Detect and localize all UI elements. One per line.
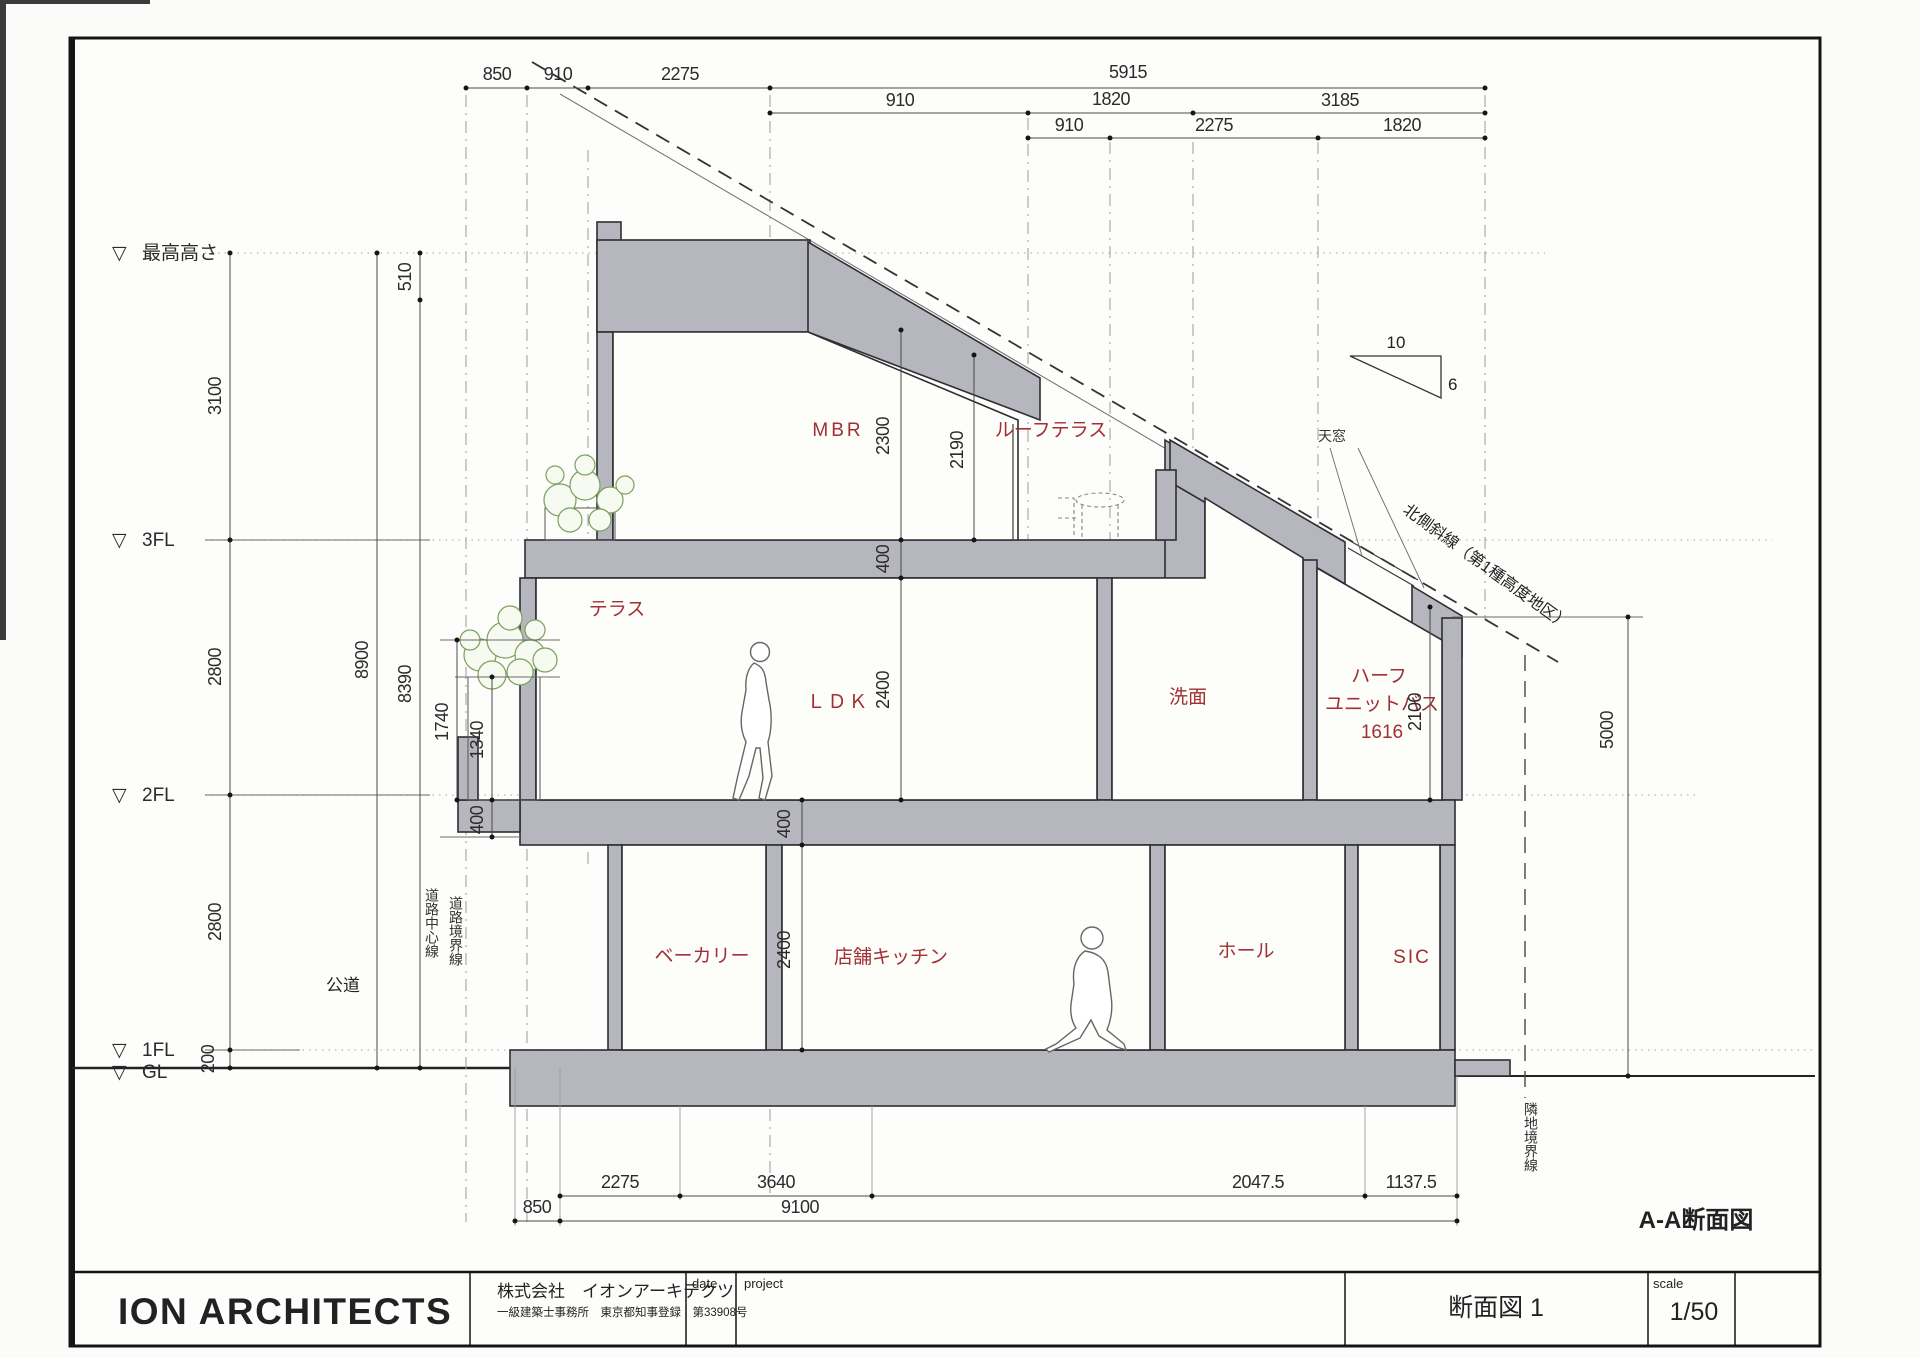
level-label-3fl: 3FL [142,530,175,551]
first-floor-right-wall [1440,845,1455,1050]
sheet-name: 断面図 1 [1448,1294,1544,1322]
dim-left-200: 200 [198,1044,218,1073]
roof-terrace-pier [1156,470,1176,540]
dim-left-510: 510 [395,262,415,291]
road-boundary-label: 道路境界線 [448,896,464,966]
dim-top1-2275: 2275 [661,64,700,84]
room-label-bath-size: 1616 [1361,722,1403,743]
room-label-bakery: ベーカリー [654,946,749,967]
person-2f-head [751,643,770,662]
neighbor-boundary-label: 隣地境界線 [1523,1102,1539,1172]
date-cell-label: date [692,1276,717,1291]
dim-bath-2100: 2100 [1405,692,1425,731]
drawing-title: A-A断面図 [1639,1206,1754,1234]
hall-sic-wall [1345,845,1358,1050]
room-label-hall: ホール [1217,941,1274,962]
dim-left-8390: 8390 [395,664,415,703]
dim-slab3f-400: 400 [873,544,893,573]
dim-bot2-9100: 9100 [781,1197,820,1217]
dim-top1-5915: 5915 [1109,62,1148,82]
gl-marker-icon: ▽ [112,1062,127,1083]
room-label-terrace: テラス [589,599,646,620]
dim-top2-910: 910 [886,90,915,110]
dim-terrace-1740: 1740 [432,702,452,741]
second-floor-left-wall [520,578,536,800]
dim-top3-2275: 2275 [1195,115,1234,135]
road-center-label: 道路中心線 [424,888,440,958]
first-floor-left-wall [608,845,622,1050]
level-label-2fl: 2FL [142,785,175,806]
f2-marker-icon: ▽ [112,785,127,806]
dim-bot1-2275: 2275 [601,1172,640,1192]
roof-slab-flat [597,240,810,332]
room-label-sic: SIC [1393,947,1431,968]
dim-mbr-2300: 2300 [873,416,893,455]
dim-top3-910: 910 [1055,115,1084,135]
second-floor-slab [520,800,1455,845]
dim-ldk-2400: 2400 [873,670,893,709]
slope-rise-label: 6 [1448,375,1457,394]
scan-edge-top [0,0,150,4]
skylight-label: 天窓 [1318,428,1346,444]
scan-edge-left [0,0,6,640]
kitchen-hall-wall [1150,845,1165,1050]
person-1f-head [1081,927,1103,949]
dim-top1-850: 850 [483,64,512,84]
dim-bot2-850: 850 [523,1197,552,1217]
slope-run-label: 10 [1387,333,1406,352]
dim-bot1-2047: 2047.5 [1232,1172,1285,1192]
firm-logo: ION ARCHITECTS [118,1291,452,1332]
dim-top3-1820: 1820 [1383,115,1422,135]
section-drawing-svg: ▽ 最高高さ ▽ 3FL ▽ 2FL ▽ 1FL ▽ GL [0,0,1920,1358]
dim-top2-1820: 1820 [1092,89,1131,109]
room-label-roof-terrace: ルーフテラス [995,420,1107,441]
dim-1f-2400: 2400 [774,930,794,969]
dim-left-2800b: 2800 [205,902,225,941]
dim-bot1-3640: 3640 [757,1172,796,1192]
room-label-ldk: ＬＤＫ [806,692,869,713]
level-label-max: 最高高さ [142,242,218,264]
room-label-shop-kitchen: 店舗キッチン [834,946,948,968]
f3-marker-icon: ▽ [112,530,127,551]
dim-top1-910: 910 [544,64,573,84]
dim-slab2f-400: 400 [774,809,794,838]
dim-bot1-1137: 1137.5 [1386,1172,1437,1192]
third-floor-slab [525,540,1200,578]
dim-terrace-400: 400 [467,805,487,834]
dim-top2-3185: 3185 [1321,90,1360,110]
max-height-marker-icon: ▽ [112,243,127,264]
f1-marker-icon: ▽ [112,1040,127,1061]
dim-mbr-2190: 2190 [947,430,967,469]
project-cell-label: project [744,1276,783,1291]
ground-step-right [1455,1060,1510,1076]
second-floor-right-wall [1442,618,1462,800]
dim-right-5000: 5000 [1597,710,1617,749]
room-label-mbr: MBR [812,420,863,441]
dim-terrace-1340: 1340 [467,720,487,759]
dim-left-2800a: 2800 [205,647,225,686]
road-label: 公道 [326,976,360,995]
level-label-1fl: 1FL [142,1040,175,1061]
level-label-gl: GL [142,1062,167,1083]
room-label-washroom: 洗面 [1169,686,1207,708]
firm-license: 一級建築士事務所 東京都知事登録 第33908号 [497,1305,747,1319]
scanned-section-drawing-sheet: ▽ 最高高さ ▽ 3FL ▽ 2FL ▽ 1FL ▽ GL [0,0,1920,1358]
scale-cell-label: scale [1653,1276,1683,1291]
ground-slab [510,1050,1455,1106]
ldk-washroom-wall [1097,578,1112,800]
dim-left-3100: 3100 [205,376,225,415]
scale-value: 1/50 [1670,1298,1719,1326]
washroom-bath-wall [1303,560,1317,800]
room-label-bath-1: ハーフ [1351,666,1407,687]
dim-left-8900: 8900 [352,640,372,679]
